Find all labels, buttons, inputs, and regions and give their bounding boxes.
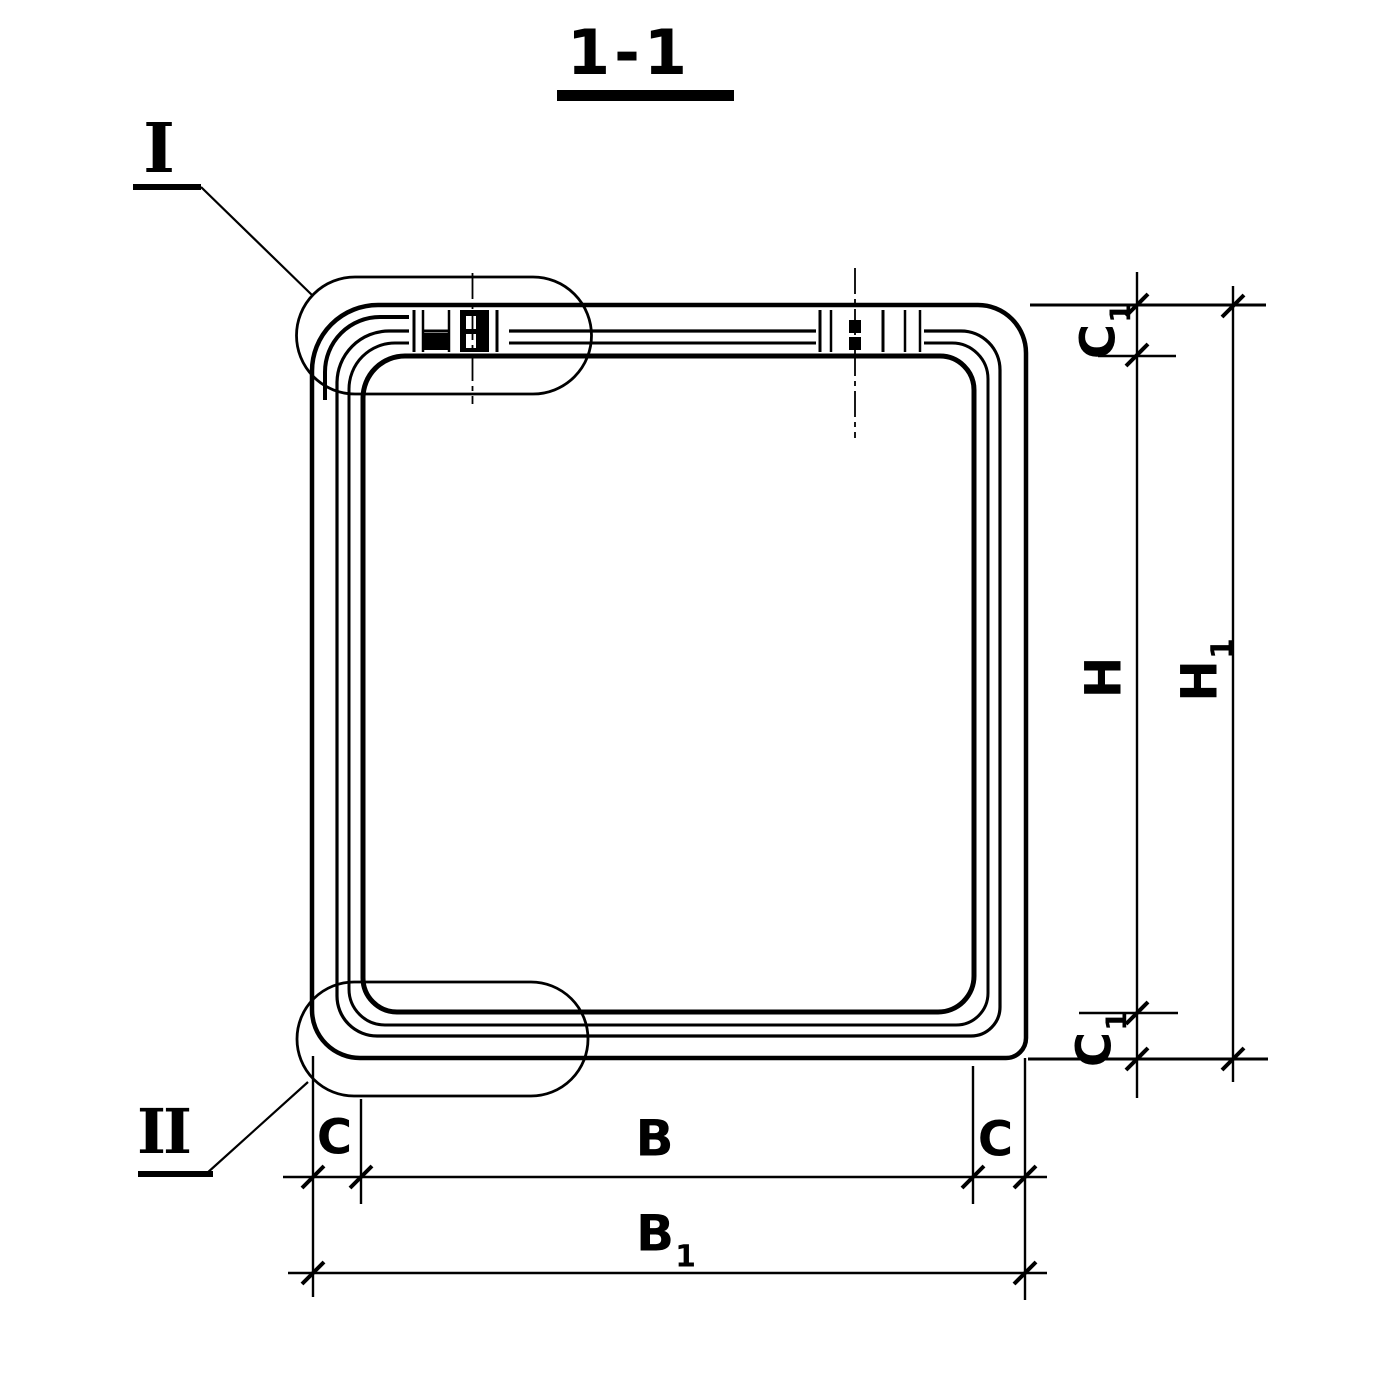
dim-label-b1: B1 bbox=[636, 1209, 696, 1268]
joint-key-block bbox=[424, 333, 448, 350]
callout-i-leader bbox=[201, 187, 313, 296]
frame-outer-contour bbox=[312, 305, 1026, 1058]
section-title: 1-1 bbox=[567, 22, 691, 84]
dim-label-c-right: C bbox=[978, 1115, 1014, 1170]
extension-lines bbox=[313, 305, 1268, 1300]
dim-label-c1-top: C1 bbox=[1074, 303, 1129, 359]
section-drawing: 1-1 I II C B C B1 C1 H H1 C1 bbox=[0, 0, 1374, 1379]
drawing-canvas bbox=[0, 0, 1374, 1379]
dim-label-h: H bbox=[1079, 656, 1138, 699]
dimension-lines bbox=[283, 272, 1233, 1273]
callout-ii-leader bbox=[206, 1082, 308, 1174]
dim-label-c1-bottom: C1 bbox=[1070, 1011, 1125, 1067]
top-joint-right bbox=[816, 268, 924, 438]
title-underline bbox=[557, 90, 734, 101]
dim-label-c-left: C bbox=[317, 1113, 353, 1168]
joint-key-slot bbox=[466, 316, 476, 329]
top-joint-left bbox=[409, 273, 509, 404]
dim-label-b: B bbox=[635, 1114, 674, 1173]
frame-ring bbox=[312, 305, 1026, 1058]
dim-label-h1: H1 bbox=[1175, 638, 1234, 702]
frame-inner-contour bbox=[363, 356, 974, 1012]
callout-leaders bbox=[133, 187, 313, 1174]
detail-callout-i: I bbox=[143, 115, 175, 183]
frame-mid-contour-1 bbox=[337, 331, 1000, 1036]
detail-boundaries bbox=[297, 277, 592, 1096]
detail-boundary-ii bbox=[297, 982, 588, 1096]
dimension-ticks bbox=[302, 294, 1244, 1284]
frame-mid-contour-2 bbox=[349, 343, 988, 1025]
joint-key-slot bbox=[466, 334, 476, 348]
detail-callout-ii: II bbox=[137, 1101, 189, 1163]
